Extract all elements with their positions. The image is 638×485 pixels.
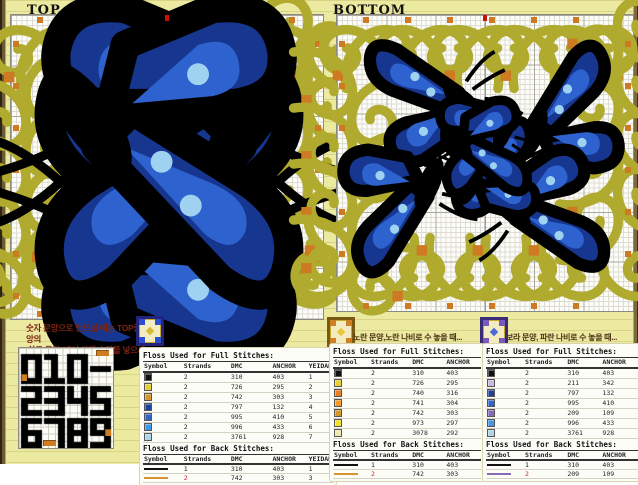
accent-stitch [363, 303, 369, 309]
color-swatch [334, 419, 342, 427]
accent-stitch [531, 303, 537, 309]
floss-row: 27423033 [143, 392, 333, 402]
line-swatch [144, 468, 168, 470]
floss-value: 2 [183, 474, 230, 483]
accent-stitch [315, 125, 321, 131]
stitch-accent-mark [105, 429, 111, 436]
floss-value: 995 [230, 412, 272, 422]
floss-value: 2 [183, 372, 230, 383]
floss-value: 310 [230, 372, 272, 383]
floss-value: 303 [445, 408, 481, 418]
floss-table-left: Floss Used for Full Stitches: SymbolStra… [140, 348, 336, 485]
floss-table-middle: Floss Used for Full Stitches: SymbolStra… [330, 344, 484, 481]
floss-value: 403 [601, 460, 638, 470]
floss-value: 403 [271, 372, 307, 383]
column-header: ANCHOR [271, 362, 307, 372]
back-stitches-table: SymbolStrandsDMCANCHOR13104032209109 [486, 450, 638, 480]
preview-corner-dot [155, 319, 161, 325]
color-swatch [487, 389, 495, 397]
floss-value: 2 [183, 382, 230, 392]
digit-glyphs [19, 348, 113, 448]
floss-value: 742 [230, 392, 272, 402]
accent-stitch [625, 251, 631, 257]
floss-value: 2 [524, 378, 566, 388]
floss-value: 209 [566, 470, 601, 479]
accent-stitch [625, 83, 631, 89]
column-header: Strands [370, 450, 411, 460]
floss-value: 2 [183, 402, 230, 412]
top-pattern-drawing [11, 15, 323, 319]
floss-value: 797 [230, 402, 272, 412]
floss-value: 304 [445, 398, 481, 408]
full-stitches-table: SymbolStrandsDMCANCHOR231040322113422797… [486, 357, 638, 439]
column-header: ANCHOR [445, 358, 481, 368]
floss-value: 295 [271, 382, 307, 392]
accent-stitch [363, 17, 369, 23]
accent-stitch [489, 17, 495, 23]
preview-center-dot [490, 328, 498, 336]
column-header: Symbol [486, 450, 524, 460]
accent-stitch [339, 209, 345, 215]
full-stitches-title: Floss Used for Full Stitches: [333, 347, 481, 356]
center-marker-icon [483, 15, 487, 21]
center-marker-icon [165, 15, 169, 21]
floss-value: 726 [411, 378, 445, 388]
accent-stitch [339, 125, 345, 131]
accent-stitch [13, 41, 19, 47]
column-header: DMC [230, 454, 272, 464]
column-header: DMC [566, 358, 601, 368]
floss-value: 292 [445, 428, 481, 438]
line-swatch [144, 477, 168, 479]
preview-corner-dot [330, 320, 336, 326]
column-header: DMC [230, 362, 272, 372]
floss-row: 2996433 [486, 418, 638, 428]
floss-row: 13104031 [143, 464, 333, 474]
floss-value: 316 [445, 388, 481, 398]
floss-value: 2 [524, 470, 566, 479]
floss-value: 973 [411, 418, 445, 428]
column-header: ANCHOR [271, 454, 307, 464]
floss-row: 2209109 [486, 408, 638, 418]
preview-center-dot [337, 328, 345, 336]
bottom-pattern-drawing [337, 15, 633, 311]
line-swatch [487, 473, 511, 475]
preview-corner-dot [139, 319, 145, 325]
floss-value: 209 [566, 408, 601, 418]
column-header: Symbol [333, 450, 370, 460]
color-swatch [144, 373, 152, 381]
preview-corner-dot [155, 337, 161, 343]
full-stitches-table: SymbolStrandsDMCANCHOR231040327262952740… [333, 357, 481, 439]
column-header: Strands [524, 450, 566, 460]
accent-stitch [573, 303, 579, 309]
top-pattern-grid [10, 14, 324, 320]
bottom-pattern-grid [336, 14, 634, 312]
accent-stitch [13, 293, 19, 299]
accent-stitch [13, 125, 19, 131]
column-header: Symbol [333, 358, 370, 368]
floss-value: 2 [370, 378, 411, 388]
preview-corner-dot [139, 337, 145, 343]
floss-row: 29954105 [143, 412, 333, 422]
floss-value: 303 [271, 392, 307, 402]
floss-row: 2742303 [333, 470, 481, 479]
floss-value: 403 [445, 460, 481, 470]
line-swatch [334, 464, 358, 466]
floss-value: 2 [524, 388, 566, 398]
yellow-variant-caption: 노란 문양,노란 나비로 수 놓을 때... [353, 332, 462, 343]
floss-value: 132 [271, 402, 307, 412]
floss-value: 3761 [566, 428, 601, 438]
column-header: ANCHOR [601, 450, 638, 460]
preview-center-dot [146, 327, 154, 335]
floss-value: 295 [445, 378, 481, 388]
accent-stitch [489, 303, 495, 309]
floss-value: 3078 [411, 428, 445, 438]
column-header: Strands [183, 362, 230, 372]
floss-value: 109 [601, 470, 638, 479]
pattern-preview-icon [136, 316, 164, 346]
floss-row: 23104031 [143, 372, 333, 383]
floss-value: 996 [230, 422, 272, 432]
accent-stitch [625, 209, 631, 215]
accent-stitch [625, 41, 631, 47]
floss-value: 297 [445, 418, 481, 428]
floss-value: 310 [230, 464, 272, 474]
stitch-accent-mark [43, 440, 56, 446]
accent-stitch [447, 303, 453, 309]
floss-value: 726 [230, 382, 272, 392]
floss-value: 433 [271, 422, 307, 432]
accent-stitch [339, 83, 345, 89]
pattern-preview-icon [480, 317, 508, 347]
floss-value: 3761 [230, 432, 272, 442]
accent-stitch [289, 17, 295, 23]
color-swatch [144, 393, 152, 401]
floss-row: 27423033 [143, 474, 333, 483]
floss-value: 2 [524, 408, 566, 418]
accent-stitch [37, 17, 43, 23]
floss-value: 2 [370, 418, 411, 428]
floss-value: 2 [370, 408, 411, 418]
floss-value: 928 [271, 432, 307, 442]
color-swatch [487, 429, 495, 437]
floss-value: 742 [230, 474, 272, 483]
floss-value: 2 [370, 470, 411, 479]
floss-row: 2740316 [333, 388, 481, 398]
floss-value: 741 [411, 398, 445, 408]
floss-value: 928 [601, 428, 638, 438]
column-header: ANCHOR [445, 450, 481, 460]
back-stitches-title: Floss Used for Back Stitches: [143, 444, 333, 453]
color-swatch [334, 399, 342, 407]
floss-value: 1 [524, 460, 566, 470]
floss-value: 433 [601, 418, 638, 428]
floss-table-right: Floss Used for Full Stitches: SymbolStra… [483, 344, 638, 481]
floss-row: 27971324 [143, 402, 333, 412]
floss-value: 310 [411, 368, 445, 379]
color-swatch [144, 413, 152, 421]
accent-stitch [13, 83, 19, 89]
floss-value: 303 [445, 470, 481, 479]
preview-corner-dot [346, 320, 352, 326]
pattern-preview-icon [327, 317, 355, 347]
floss-row: 2995410 [486, 398, 638, 408]
floss-row: 2726295 [333, 378, 481, 388]
color-swatch [487, 419, 495, 427]
color-swatch [144, 433, 152, 441]
line-swatch [334, 473, 358, 475]
color-swatch [334, 389, 342, 397]
floss-value: 2 [524, 398, 566, 408]
accent-stitch [405, 17, 411, 23]
floss-value: 342 [601, 378, 638, 388]
floss-row: 2797132 [486, 388, 638, 398]
floss-row: 27262952 [143, 382, 333, 392]
floss-value: 403 [271, 464, 307, 474]
accent-stitch [13, 251, 19, 257]
floss-value: 2 [183, 432, 230, 442]
floss-value: 132 [601, 388, 638, 398]
back-stitches-table: SymbolStrandsDMCANCHOR13104032742303 [333, 450, 481, 480]
floss-row: 2742303 [333, 408, 481, 418]
back-stitches-title: Floss Used for Back Stitches: [333, 440, 481, 449]
accent-stitch [531, 17, 537, 23]
color-swatch [144, 423, 152, 431]
floss-row: 1310403 [486, 460, 638, 470]
floss-value: 742 [411, 470, 445, 479]
floss-value: 2 [370, 428, 411, 438]
floss-value: 2 [183, 392, 230, 402]
column-header: Strands [183, 454, 230, 464]
floss-row: 2741304 [333, 398, 481, 408]
preview-corner-dot [483, 320, 489, 326]
floss-value: 2 [183, 422, 230, 432]
floss-value: 2 [370, 388, 411, 398]
color-swatch [334, 379, 342, 387]
floss-row: 2310403 [333, 368, 481, 379]
floss-value: 2 [370, 368, 411, 379]
stitch-accent-mark [96, 350, 109, 356]
accent-stitch [625, 125, 631, 131]
column-header: Symbol [486, 358, 524, 368]
floss-value: 1 [370, 460, 411, 470]
color-swatch [487, 399, 495, 407]
color-swatch [487, 409, 495, 417]
preview-corner-dot [499, 320, 505, 326]
accent-stitch [447, 17, 453, 23]
floss-value: 410 [601, 398, 638, 408]
color-swatch [144, 383, 152, 391]
column-header: ANCHOR [601, 358, 638, 368]
floss-value: 2 [524, 368, 566, 379]
accent-stitch [339, 41, 345, 47]
color-swatch [487, 379, 495, 387]
floss-row: 2209109 [486, 470, 638, 479]
column-header: Symbol [143, 454, 183, 464]
accent-stitch [339, 251, 345, 257]
floss-value: 403 [445, 368, 481, 379]
column-header: DMC [411, 358, 445, 368]
paper-background: TOP (w 60 x h 60) BOTTOM 숫자 문양으로 만드실 때는 … [0, 0, 638, 464]
floss-row: 2973297 [333, 418, 481, 428]
floss-value: 310 [566, 368, 601, 379]
full-stitches-title: Floss Used for Full Stitches: [486, 347, 638, 356]
floss-value: 740 [411, 388, 445, 398]
floss-value: 410 [271, 412, 307, 422]
floss-value: 303 [271, 474, 307, 483]
floss-row: 237619287 [143, 432, 333, 442]
full-stitches-title: Floss Used for Full Stitches: [143, 351, 333, 360]
floss-row: 2211342 [486, 378, 638, 388]
floss-value: 2 [524, 428, 566, 438]
floss-value: 211 [566, 378, 601, 388]
floss-value: 310 [566, 460, 601, 470]
floss-row: 29964336 [143, 422, 333, 432]
column-header: DMC [411, 450, 445, 460]
stitch-accent-mark [21, 374, 27, 381]
column-header: Strands [370, 358, 411, 368]
floss-value: 403 [601, 368, 638, 379]
column-header: Symbol [143, 362, 183, 372]
accent-stitch [405, 303, 411, 309]
floss-value: 742 [411, 408, 445, 418]
column-header: DMC [566, 450, 601, 460]
floss-value: 2 [370, 398, 411, 408]
floss-value: 996 [566, 418, 601, 428]
back-stitches-title: Floss Used for Back Stitches: [486, 440, 638, 449]
floss-row: 23078292 [333, 428, 481, 438]
floss-row: 23761928 [486, 428, 638, 438]
line-swatch [487, 464, 511, 466]
color-swatch [144, 403, 152, 411]
floss-value: 995 [566, 398, 601, 408]
accent-stitch [573, 17, 579, 23]
pattern-note-line1: 숫자 문양으로 만드실 때는 TOP중앙의 [26, 323, 146, 345]
purple-variant-caption: 보라 문양, 파란 나비로 수 놓을 때... [506, 332, 617, 343]
floss-value: 109 [601, 408, 638, 418]
back-stitches-table: SymbolStrandsDMCANCHORYEIDAM131040312742… [143, 454, 333, 484]
color-swatch [487, 369, 495, 377]
digit-chart [18, 347, 114, 449]
floss-value: 1 [183, 464, 230, 474]
floss-value: 797 [566, 388, 601, 398]
floss-row: 2310403 [486, 368, 638, 379]
floss-value: 2 [524, 418, 566, 428]
floss-value: 310 [411, 460, 445, 470]
full-stitches-table: SymbolStrandsDMCANCHORYEIDAM231040312726… [143, 361, 333, 443]
color-swatch [334, 409, 342, 417]
color-swatch [334, 429, 342, 437]
column-header: Strands [524, 358, 566, 368]
floss-value: 2 [183, 412, 230, 422]
floss-row: 1310403 [333, 460, 481, 470]
color-swatch [334, 369, 342, 377]
accent-stitch [625, 167, 631, 173]
